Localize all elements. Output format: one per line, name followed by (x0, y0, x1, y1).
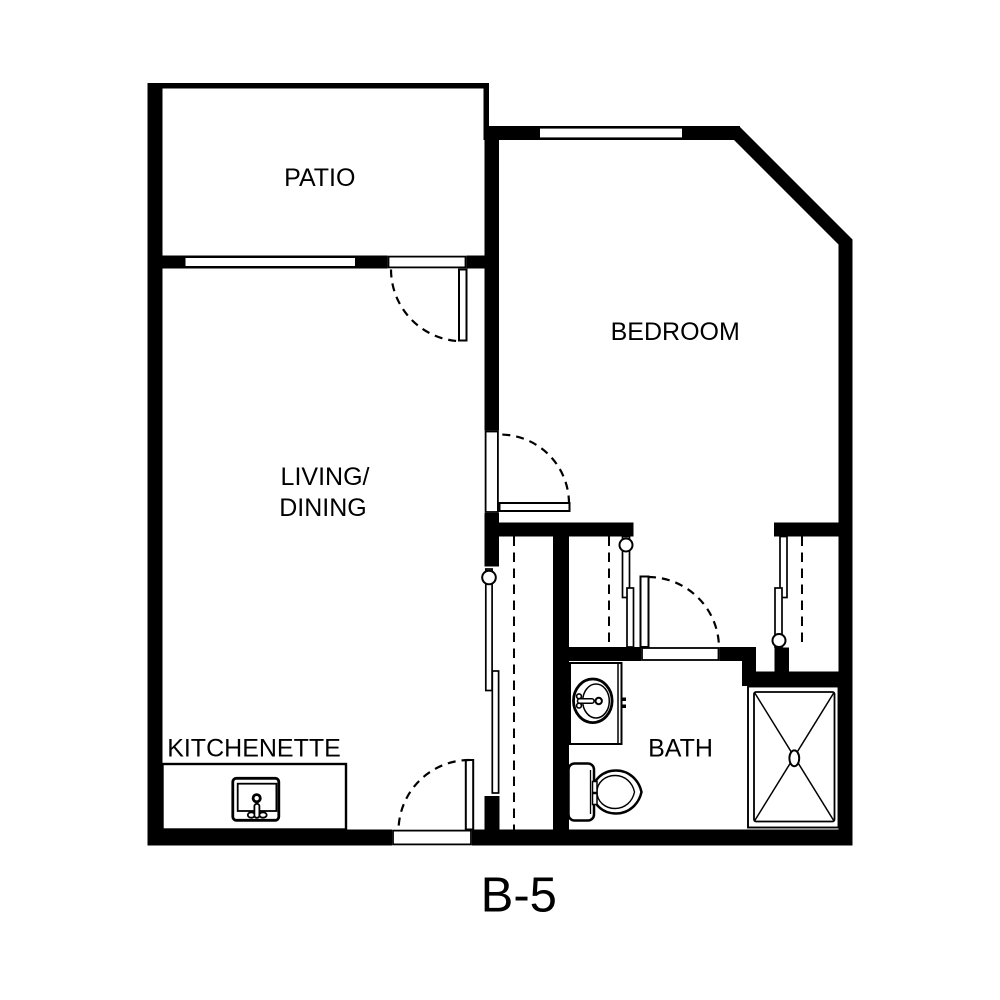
svg-text:DINING: DINING (279, 494, 367, 522)
svg-text:BATH: BATH (648, 735, 713, 763)
svg-text:PATIO: PATIO (284, 164, 355, 192)
svg-text:B-5: B-5 (481, 869, 557, 923)
svg-text:KITCHENETTE: KITCHENETTE (167, 735, 341, 763)
svg-text:LIVING/: LIVING/ (281, 463, 370, 491)
svg-text:BEDROOM: BEDROOM (611, 318, 740, 346)
